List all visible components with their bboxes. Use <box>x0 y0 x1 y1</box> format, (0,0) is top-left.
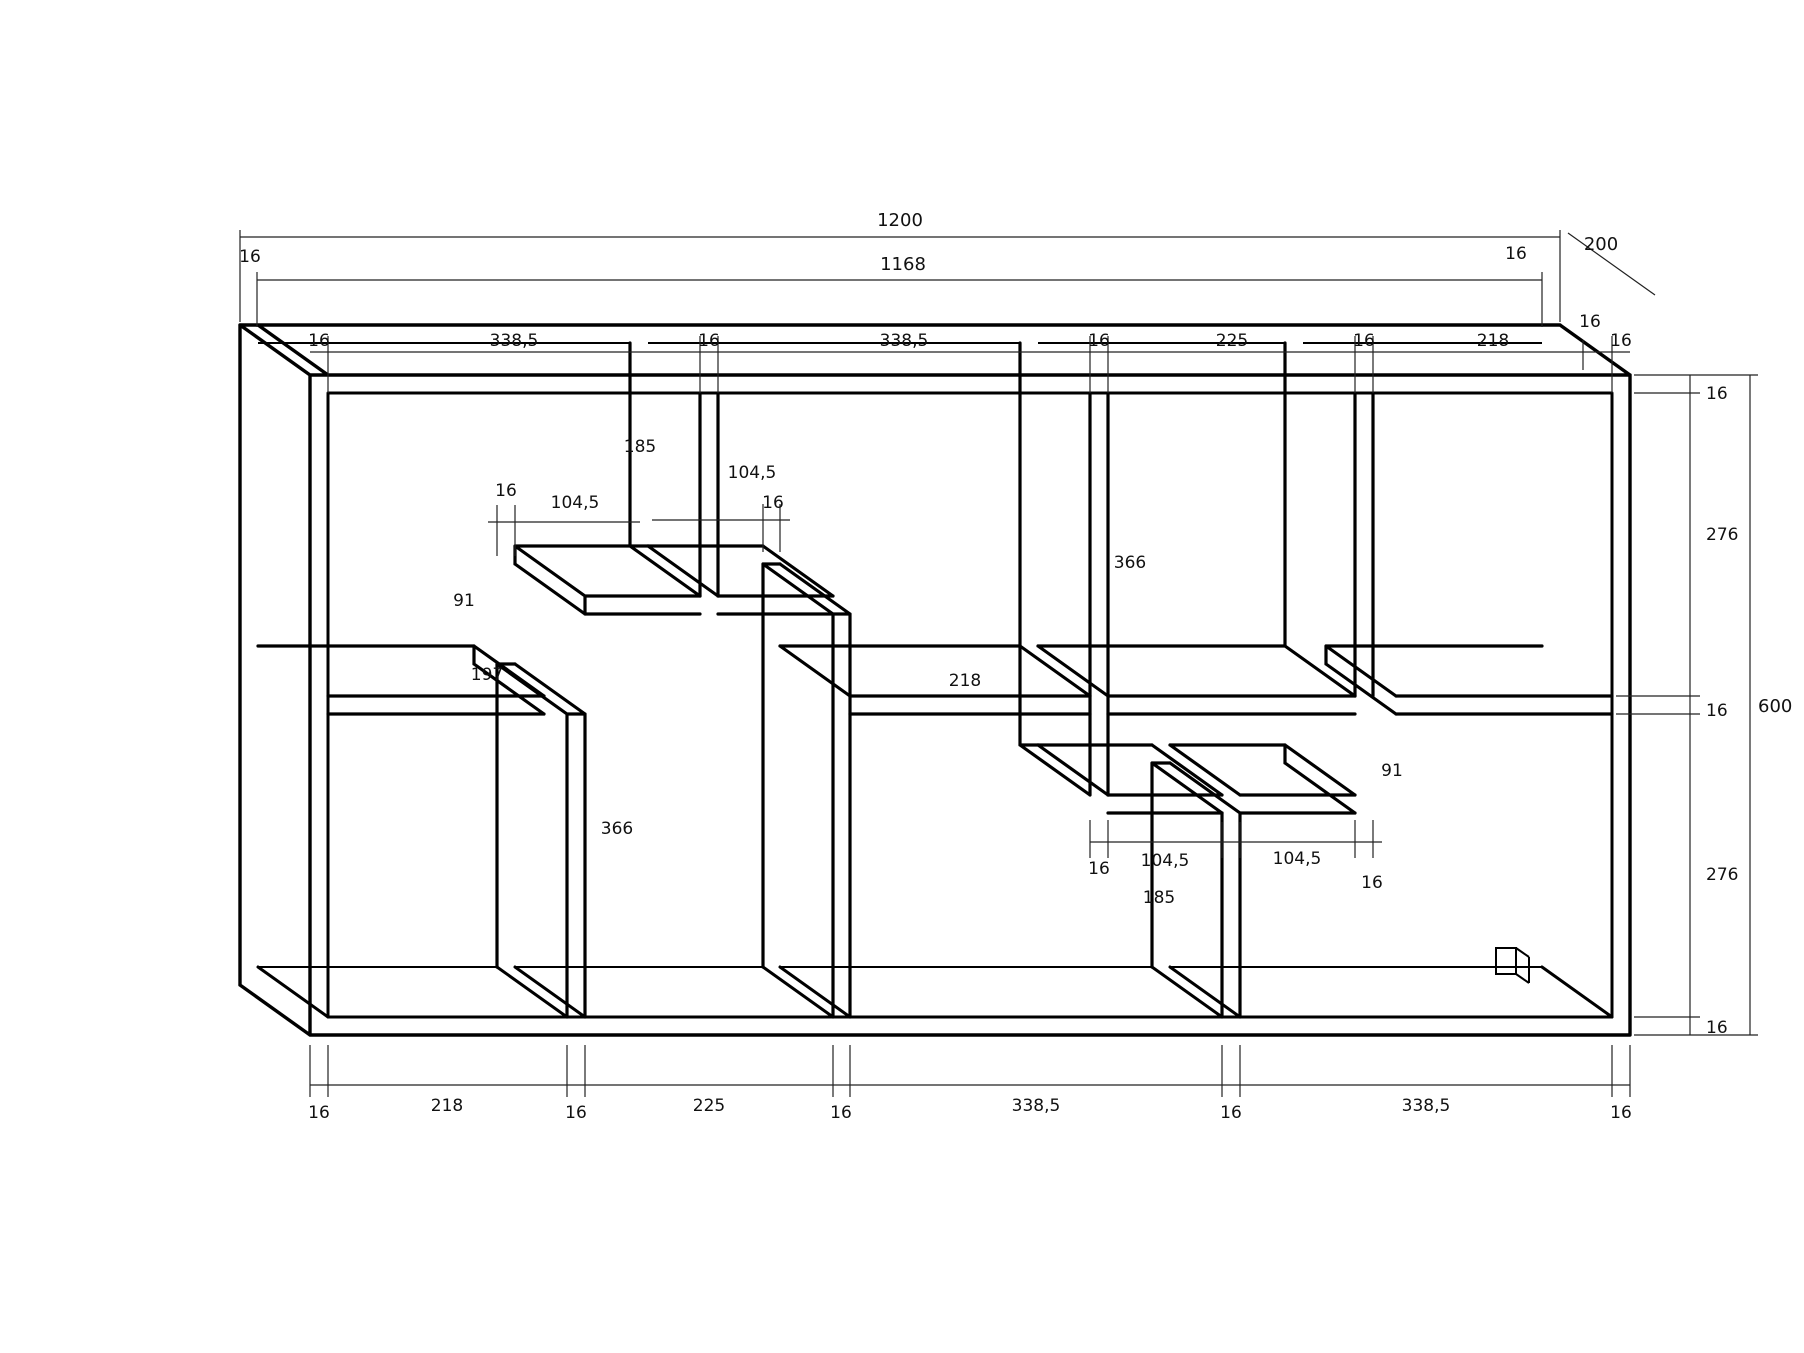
dim-toprow-1: 338,5 <box>490 331 539 351</box>
dim-toprow-7: 218 <box>1477 331 1509 351</box>
dim-t2-height-366: 366 <box>1114 553 1146 573</box>
dim-gap-right-91: 91 <box>1381 761 1403 781</box>
dim-t3-tick: 16 <box>1361 873 1383 893</box>
dim-depth-16: 16 <box>1579 312 1601 332</box>
dim-right-16-bottom: 16 <box>1706 1018 1728 1038</box>
dim-s1a-width: 104,5 <box>551 493 600 513</box>
dim-right-16-mid: 16 <box>1706 701 1728 721</box>
dim-bottomrow-5: 338,5 <box>1012 1096 1061 1116</box>
dim-toprow-8: 16 <box>1610 331 1632 351</box>
dim-bottomrow-7: 338,5 <box>1402 1096 1451 1116</box>
dim-shelf-mid-218: 218 <box>949 671 981 691</box>
dim-toprow-0: 16 <box>308 331 330 351</box>
dim-toprow-3: 338,5 <box>880 331 929 351</box>
dim-gap-left-91: 91 <box>453 591 475 611</box>
dim-right-276-lower: 276 <box>1706 865 1738 885</box>
paper-background <box>0 0 1804 1353</box>
dim-top-right-16: 16 <box>1505 244 1527 264</box>
dim-bottomrow-1: 218 <box>431 1096 463 1116</box>
dim-right-16-top: 16 <box>1706 384 1728 404</box>
dim-s2a-width: 104,5 <box>1141 851 1190 871</box>
dim-width-total: 1200 <box>877 210 923 231</box>
dim-depth-200: 200 <box>1584 234 1618 255</box>
dim-t2-tick: 16 <box>1088 859 1110 879</box>
dim-right-276-upper: 276 <box>1706 525 1738 545</box>
dim-t1-height: 185 <box>624 437 656 457</box>
dim-s2b-width: 104,5 <box>1273 849 1322 869</box>
dim-top-left-16: 16 <box>239 247 261 267</box>
dim-toprow-5: 225 <box>1216 331 1248 351</box>
technical-drawing-page: 1200 1168 16 16 200 16 16 338,5 16 338,5… <box>0 0 1804 1353</box>
dim-bottomrow-4: 16 <box>830 1103 852 1123</box>
dim-bottomrow-8: 16 <box>1610 1103 1632 1123</box>
dim-width-inner: 1168 <box>880 254 926 275</box>
dim-s1b-width: 104,5 <box>728 463 777 483</box>
dim-bottomrow-6: 16 <box>1220 1103 1242 1123</box>
shelf-drawing-canvas: 1200 1168 16 16 200 16 16 338,5 16 338,5… <box>0 0 1804 1353</box>
dim-b1-tick: 16 <box>495 481 517 501</box>
dim-toprow-6: 16 <box>1353 331 1375 351</box>
dim-shelf-left-197: 197 <box>471 665 503 685</box>
dim-height-total: 600 <box>1758 696 1792 717</box>
dim-bottomrow-0: 16 <box>308 1103 330 1123</box>
dim-b3-height-185: 185 <box>1143 888 1175 908</box>
dim-bottomrow-3: 225 <box>693 1096 725 1116</box>
dim-b1-height-366: 366 <box>601 819 633 839</box>
dim-b2-tick: 16 <box>762 493 784 513</box>
dim-toprow-4: 16 <box>1088 331 1110 351</box>
dim-toprow-2: 16 <box>698 331 720 351</box>
dim-bottomrow-2: 16 <box>565 1103 587 1123</box>
